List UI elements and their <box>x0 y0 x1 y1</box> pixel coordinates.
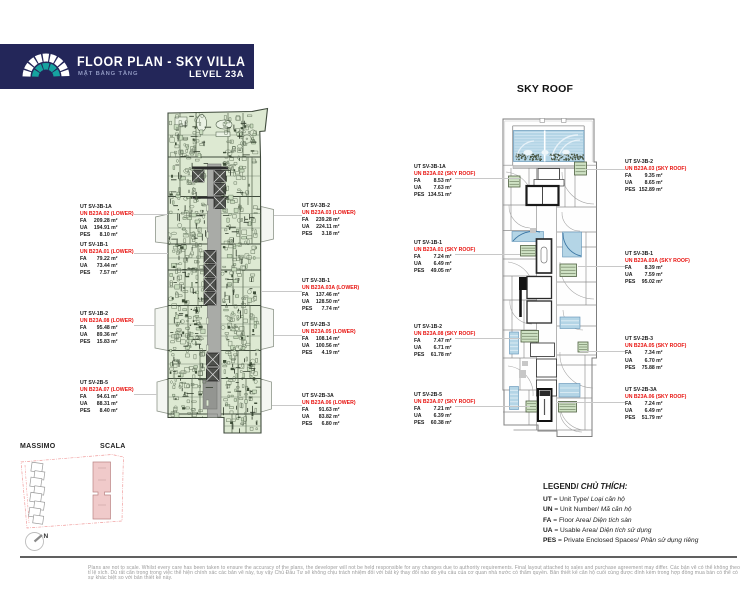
svg-text:N: N <box>44 533 49 540</box>
